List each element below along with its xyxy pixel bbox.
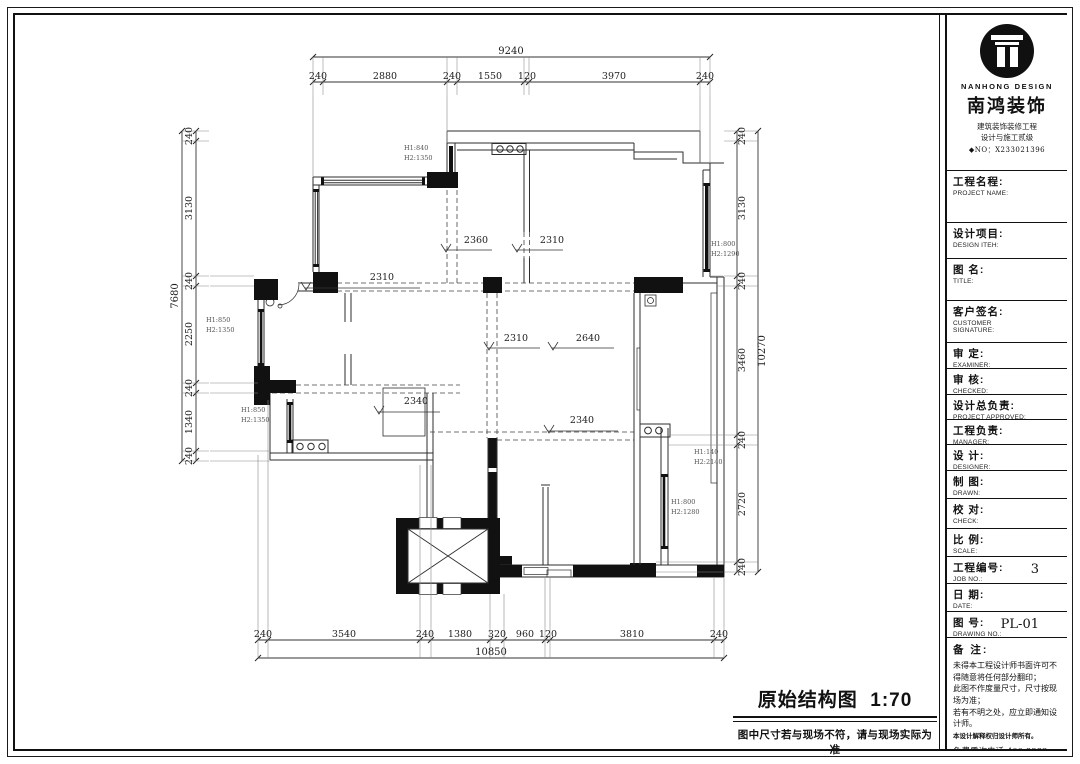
field-label-cn: 比 例: [953, 532, 1067, 547]
floor-plan: 2402880240155012039702409240240354024013… [0, 0, 1080, 764]
dimension-label: 3460 [737, 348, 748, 372]
caption-title: 原始结构图 1:70 [733, 685, 937, 716]
field-label-cn: 设 计: [953, 448, 1067, 463]
field-value: 3 [1031, 562, 1039, 577]
window-glazing-bars [258, 146, 710, 549]
dimension-label: 320 [488, 629, 506, 640]
brand-name-cn: 南鸿装饰 [947, 92, 1067, 118]
title-block-field: 客户签名:CUSTOMER SIGNATURE: [947, 301, 1067, 343]
title-block-fields: 工程名程:PROJECT NAME:设计项目:DESIGN ITEH:图 名:T… [947, 171, 1067, 638]
field-label-cn: 工程编号: [953, 560, 1067, 575]
title-block-field: 比 例:SCALE: [947, 529, 1067, 557]
dimension-label: 240 [184, 447, 195, 465]
dimension-label: 240 [184, 379, 195, 397]
note-line: 若有不明之处，应立即通知设计师。 [953, 707, 1062, 730]
dimension-label: H2:1290 [711, 250, 740, 258]
field-label-en: CUSTOMER SIGNATURE: [953, 320, 1067, 334]
dimension-label: 10850 [475, 647, 507, 658]
caption-rule [733, 716, 937, 718]
title-block-field: 工程名程:PROJECT NAME: [947, 171, 1067, 223]
dimension-label: 3970 [602, 71, 626, 82]
dimension-label: 2720 [737, 492, 748, 516]
dimension-label: 1380 [448, 629, 472, 640]
dimension-label: H1:140 [694, 448, 718, 456]
field-label-en: SCALE: [953, 548, 1067, 555]
title-block: NANHONG DESIGN 南鸿装饰 建筑装饰装修工程 设计与施工贰级 ◆NO… [939, 15, 1067, 749]
field-label-cn: 客户签名: [953, 304, 1067, 319]
field-label-cn: 工程名程: [953, 174, 1067, 189]
field-label-en: PROJECT NAME: [953, 190, 1067, 197]
field-label-en: CHECKED: [953, 388, 1067, 395]
dimension-label: H2:1350 [241, 416, 270, 424]
dimension-label: 240 [710, 629, 728, 640]
notes-section: 备 注: 未得本工程设计师书面许可不得随意将任何部分翻印；此图不作度量尺寸，尺寸… [947, 638, 1067, 749]
dimension-label: 240 [184, 272, 195, 290]
caption-rule [733, 721, 937, 722]
field-label-en: TITLE: [953, 278, 1067, 285]
dimension-label: 240 [737, 272, 748, 290]
dimension-label: 240 [737, 127, 748, 145]
dimension-label: 7680 [170, 283, 181, 308]
dimension-label: 2310 [540, 235, 564, 246]
dimension-label: H1:800 [711, 240, 735, 248]
notes-label: 备 注: [953, 643, 1062, 658]
dimension-label: 2310 [370, 272, 394, 283]
dimension-label: 3540 [332, 629, 356, 640]
dimension-label: H1:800 [671, 498, 695, 506]
dimension-label: 120 [518, 71, 536, 82]
field-label-cn: 日 期: [953, 587, 1067, 602]
note-line: 未得本工程设计师书面许可不得随意将任何部分翻印； [953, 660, 1062, 683]
field-label-cn: 制 图: [953, 474, 1067, 489]
field-label-cn: 设计项目: [953, 226, 1067, 241]
dimension-label: H2:1280 [671, 508, 700, 516]
caption-scale: 1:70 [870, 690, 912, 711]
cert-number: ◆NO：X233021396 [947, 145, 1067, 155]
dimension-label: 3810 [620, 629, 644, 640]
field-label-cn: 图 名: [953, 262, 1067, 277]
field-label-cn: 审 核: [953, 372, 1067, 387]
dimension-label: 3130 [184, 196, 195, 220]
field-label-en: EXAMINER: [953, 362, 1067, 369]
notes-fine-print: 本设计解释权归设计师所有。 [953, 732, 1062, 741]
dimension-label: 2340 [404, 396, 428, 407]
field-label-en: JOB NO.: [953, 576, 1067, 583]
dimension-label: 2360 [464, 235, 488, 246]
dimension-label: 2640 [576, 333, 600, 344]
title-block-field: 图 号:DRAWING NO.:PL-01 [947, 612, 1067, 638]
title-block-field: 工程负责:MANAGER: [947, 420, 1067, 445]
dimension-label: 120 [539, 629, 557, 640]
structural-columns [254, 172, 683, 405]
caption-note: 图中尺寸若与现场不符，请与现场实际为准 [733, 727, 937, 757]
dimension-label: 2880 [373, 71, 397, 82]
title-block-field: 工程编号:JOB NO.:3 [947, 557, 1067, 584]
brand-name-en: NANHONG DESIGN [947, 82, 1067, 91]
dimension-label: H1:840 [404, 144, 428, 152]
title-block-field: 审 定:EXAMINER: [947, 343, 1067, 369]
dimension-label: 1550 [478, 71, 502, 82]
field-label-en: CHECK: [953, 518, 1067, 525]
dimension-label: 240 [416, 629, 434, 640]
field-value: PL-01 [1001, 617, 1039, 632]
dimension-label: 960 [516, 629, 534, 640]
title-block-field: 设计总负责:PROJECT APPROVED: [947, 395, 1067, 420]
title-block-field: 日 期:DATE: [947, 584, 1067, 612]
field-label-en: DESIGNER: [953, 464, 1067, 471]
dimension-label: 240 [309, 71, 327, 82]
drawing-sheet: 2402880240155012039702409240240354024013… [0, 0, 1080, 764]
field-label-en: DRAWN: [953, 490, 1067, 497]
field-label-en: DESIGN ITEH: [953, 242, 1067, 249]
dimension-label: H2:1350 [206, 326, 235, 334]
dimension-label: H1:850 [206, 316, 230, 324]
title-block-field: 设计项目:DESIGN ITEH: [947, 223, 1067, 259]
dimension-label: 240 [737, 431, 748, 449]
walls-layer [210, 95, 724, 627]
dimension-label: H2:1350 [404, 154, 433, 162]
notes-lines: 未得本工程设计师书面许可不得随意将任何部分翻印；此图不作度量尺寸，尺寸按现场为准… [953, 660, 1062, 730]
note-line: 此图不作度量尺寸，尺寸按现场为准； [953, 683, 1062, 706]
cert-line-1: 建筑装饰装修工程 [947, 121, 1067, 132]
dimension-label: 9240 [498, 46, 523, 57]
dimension-label: 2340 [570, 415, 594, 426]
caption-name: 原始结构图 [758, 690, 858, 711]
field-label-en: DATE: [953, 603, 1067, 610]
notes-phone: 免费质询电话:400 8383 168 [953, 746, 1062, 749]
dimension-label: 240 [254, 629, 272, 640]
dimension-label: 2250 [184, 322, 195, 346]
dimension-label: H2:2140 [694, 458, 723, 466]
company-logo-icon [980, 24, 1034, 78]
dimension-label: 240 [737, 558, 748, 576]
dimension-label: 10270 [757, 335, 768, 367]
dimension-label: 240 [443, 71, 461, 82]
brand-header: NANHONG DESIGN 南鸿装饰 建筑装饰装修工程 设计与施工贰级 ◆NO… [947, 15, 1067, 171]
title-block-field: 审 核:CHECKED: [947, 369, 1067, 395]
field-label-cn: 设计总负责: [953, 398, 1067, 413]
dimension-label: 1340 [184, 410, 195, 434]
title-block-field: 设 计:DESIGNER: [947, 445, 1067, 471]
title-block-field: 制 图:DRAWN: [947, 471, 1067, 499]
dimension-label: 3130 [737, 196, 748, 220]
cert-line-2: 设计与施工贰级 [947, 132, 1067, 143]
title-block-field: 校 对:CHECK: [947, 499, 1067, 529]
field-label-cn: 工程负责: [953, 423, 1067, 438]
field-label-en: DRAWING NO.: [953, 631, 1067, 638]
dimension-label: 240 [696, 71, 714, 82]
dimension-label: H1:850 [241, 406, 265, 414]
field-label-cn: 校 对: [953, 502, 1067, 517]
interior-dimensions: 2360231023102310264023402340 [301, 235, 618, 433]
title-block-field: 图 名:TITLE: [947, 259, 1067, 301]
brand-certification: 建筑装饰装修工程 设计与施工贰级 [947, 121, 1067, 144]
drawing-caption: 原始结构图 1:70 图中尺寸若与现场不符，请与现场实际为准 [733, 685, 937, 757]
dimension-label: 2310 [504, 333, 528, 344]
field-label-cn: 审 定: [953, 346, 1067, 361]
dimension-label: 240 [184, 127, 195, 145]
